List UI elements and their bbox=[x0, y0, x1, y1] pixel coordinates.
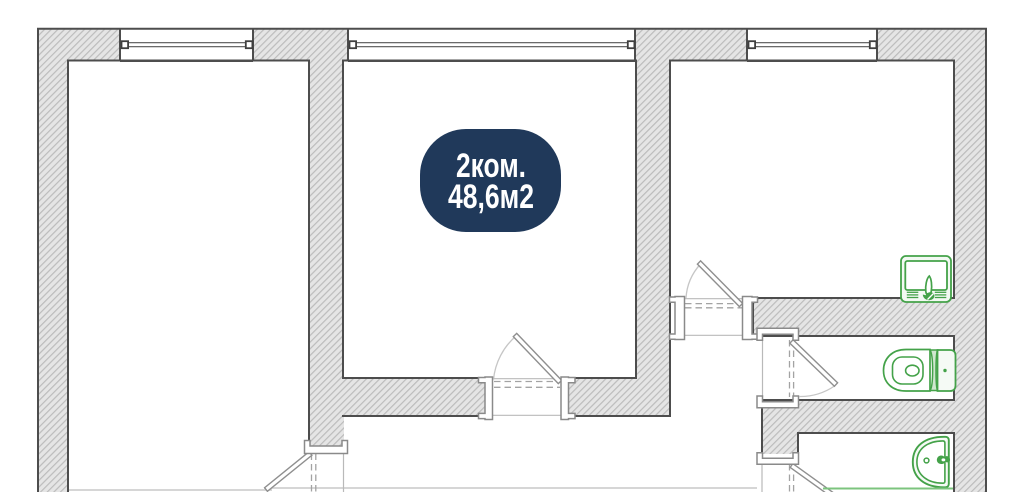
svg-text:48,6м2: 48,6м2 bbox=[448, 178, 534, 216]
